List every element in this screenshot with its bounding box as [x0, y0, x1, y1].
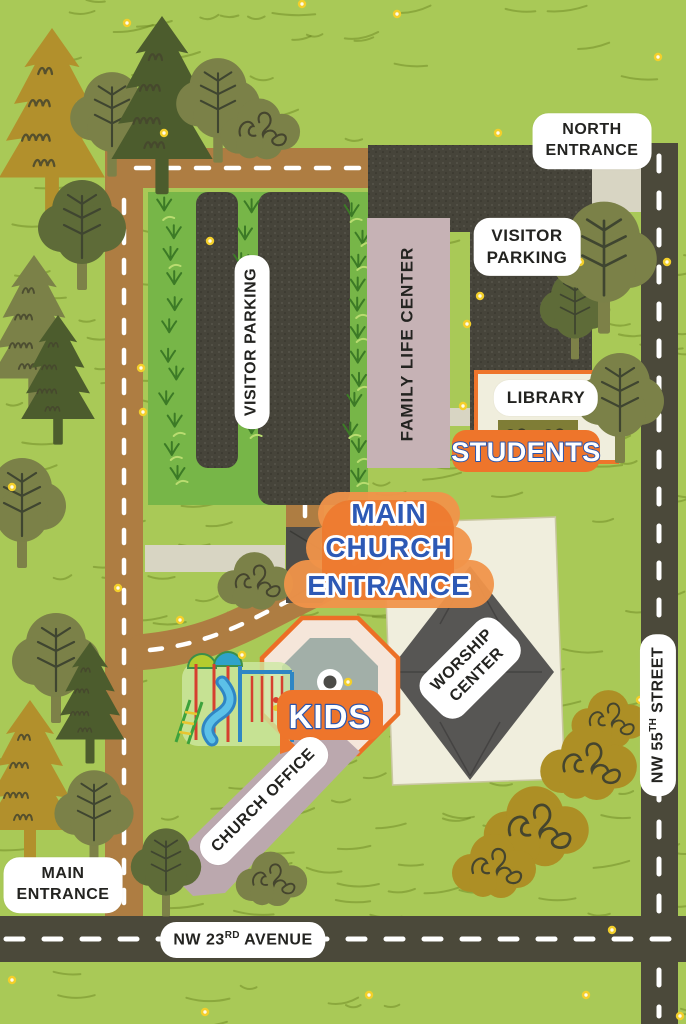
- visitor-parking-north-label: VISITOR PARKING: [474, 218, 581, 276]
- firefly-dot-icon: [676, 1012, 684, 1020]
- playground-icon: [176, 652, 294, 746]
- street-nw-23: [0, 916, 686, 962]
- students-badge: STUDENTS: [451, 430, 601, 472]
- main-church-entrance-label-line3: ENTRANCE: [307, 570, 471, 601]
- firefly-dot-icon: [176, 616, 184, 624]
- firefly-dot-icon: [393, 10, 401, 18]
- firefly-dot-icon: [137, 364, 145, 372]
- firefly-dot-icon: [206, 237, 214, 245]
- library-label: LIBRARY: [494, 380, 598, 416]
- round-tree-icon: [0, 458, 66, 568]
- firefly-dot-icon: [582, 991, 590, 999]
- firefly-dot-icon: [476, 292, 484, 300]
- firefly-dot-icon: [114, 584, 122, 592]
- firefly-dot-icon: [8, 976, 16, 984]
- visitor-parking-west-label: VISITOR PARKING: [235, 255, 270, 429]
- nw-23rd-avenue-label: NW 23RD AVENUE: [160, 922, 325, 958]
- firefly-dot-icon: [365, 991, 373, 999]
- firefly-dot-icon: [494, 129, 502, 137]
- kids-label: KIDS: [289, 698, 372, 735]
- nw-55th-street-label: NW 55TH STREET: [640, 634, 676, 796]
- church-campus-map: MAIN CHURCH ENTRANCE STUDENTS KIDS NORTH…: [0, 0, 686, 1024]
- firefly-dot-icon: [663, 258, 671, 266]
- main-entrance-label: MAIN ENTRANCE: [4, 857, 123, 913]
- firefly-dot-icon: [139, 408, 147, 416]
- firefly-dot-icon: [298, 0, 306, 8]
- firefly-dot-icon: [8, 483, 16, 491]
- firefly-dot-icon: [238, 651, 246, 659]
- firefly-dot-icon: [344, 678, 352, 686]
- north-entrance-label: NORTH ENTRANCE: [533, 113, 652, 169]
- students-label: STUDENTS: [451, 437, 601, 467]
- firefly-dot-icon: [160, 129, 168, 137]
- firefly-dot-icon: [123, 19, 131, 27]
- main-church-entrance-label-line1: MAIN: [351, 498, 427, 529]
- firefly-dot-icon: [608, 926, 616, 934]
- main-church-entrance-label-line2: CHURCH: [325, 532, 452, 563]
- firefly-dot-icon: [654, 53, 662, 61]
- firefly-dot-icon: [201, 1008, 209, 1016]
- firefly-dot-icon: [463, 320, 471, 328]
- family-life-center-label: FAMILY LIFE CENTER: [396, 247, 421, 442]
- firefly-dot-icon: [459, 402, 467, 410]
